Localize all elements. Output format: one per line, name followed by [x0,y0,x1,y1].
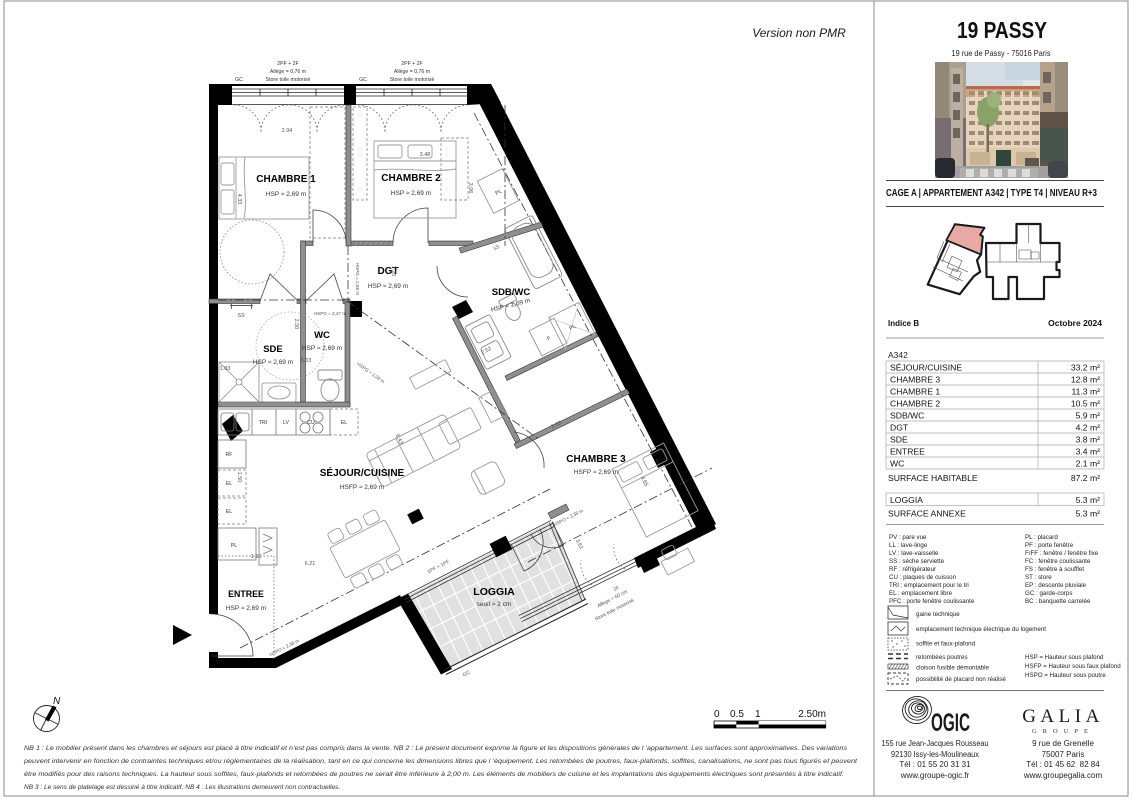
svg-text:HSFP = Hauteur sous faux plafo: HSFP = Hauteur sous faux plafond [1025,663,1121,670]
svg-text:HSPG = 1,28 m: HSPG = 1,28 m [356,361,385,384]
svg-text:2.50: 2.50 [293,319,299,330]
svg-text:Allège = 0,76 m: Allège = 0,76 m [394,69,430,75]
svg-text:NB 3 : Le sens de platelage es: NB 3 : Le sens de platelage est dessiné … [24,784,340,791]
svg-text:SS: SS [492,244,500,251]
svg-text:2.1 m²: 2.1 m² [1076,459,1100,469]
svg-text:WC: WC [314,330,330,341]
svg-text:3.4 m²: 3.4 m² [1076,447,1100,457]
svg-text:LV : lave-vaisselle: LV : lave-vaisselle [889,550,939,557]
svg-text:CHAMBRE 1: CHAMBRE 1 [256,174,316,185]
svg-text:F: F [546,335,552,342]
svg-text:LL : lave-linge: LL : lave-linge [889,542,928,549]
svg-text:SURFACE HABITABLE: SURFACE HABITABLE [888,473,978,483]
svg-text:SS : sèche serviette: SS : sèche serviette [889,558,945,565]
svg-text:2.50m: 2.50m [798,709,826,720]
svg-text:GC: GC [462,670,472,679]
svg-text:PF : porte fenêtre: PF : porte fenêtre [1025,542,1074,549]
svg-text:Allège = 0,76 m: Allège = 0,76 m [270,69,306,75]
svg-text:WC: WC [890,459,904,469]
svg-text:1.50: 1.50 [251,554,262,560]
svg-text:SDB/WC: SDB/WC [492,287,531,298]
svg-text:HSP ≈ 2,69 m: HSP ≈ 2,69 m [253,359,293,366]
svg-text:5.9 m²: 5.9 m² [1076,411,1100,421]
svg-text:Version non PMR: Version non PMR [752,26,846,40]
svg-text:FC : fenêtre coulissante: FC : fenêtre coulissante [1025,558,1091,565]
svg-text:Octobre 2024: Octobre 2024 [1048,318,1102,328]
svg-text:N: N [53,696,61,707]
svg-text:75007 Paris: 75007 Paris [1042,750,1085,759]
svg-text:5.3 m²: 5.3 m² [1076,509,1100,519]
svg-text:BC : banquette carrelée: BC : banquette carrelée [1025,598,1091,605]
svg-text:HSFP ≈ 2,69 m: HSFP ≈ 2,69 m [574,469,618,476]
svg-text:HSPG = 2,47 m: HSPG = 2,47 m [314,311,346,316]
svg-text:SÉJOUR/CUISINE: SÉJOUR/CUISINE [320,466,405,479]
svg-text:peuvent intervenir en fonction: peuvent intervenir en fonction de contra… [23,758,858,765]
svg-text:ENTREE: ENTREE [228,589,264,599]
svg-text:HSP ≈ 2,69 m: HSP ≈ 2,69 m [391,190,431,197]
svg-text:3.8 m²: 3.8 m² [1076,435,1100,445]
svg-text:www.groupegalia.com: www.groupegalia.com [1023,771,1103,780]
svg-text:4.2 m²: 4.2 m² [1076,423,1100,433]
svg-text:CAGE A | APPARTEMENT A342 | TY: CAGE A | APPARTEMENT A342 | TYPE T4 | NI… [886,188,1097,199]
svg-text:RF : réfrigérateur: RF : réfrigérateur [889,566,936,573]
svg-text:GALIA: GALIA [1022,706,1104,727]
svg-text:LOGGIA: LOGGIA [890,495,923,505]
svg-text:PL: PL [569,324,578,332]
svg-text:TRI : emplacement pour le tri: TRI : emplacement pour le tri [889,582,969,589]
svg-text:seuil ≈ 2 cm: seuil ≈ 2 cm [477,601,512,608]
svg-text:3.06: 3.06 [467,183,473,194]
svg-text:5.03: 5.03 [301,358,312,364]
svg-text:PL : placard: PL : placard [1025,534,1058,541]
svg-text:ENTREE: ENTREE [890,447,925,457]
svg-text:SS: SS [237,313,245,319]
svg-text:19 PASSY: 19 PASSY [957,17,1047,43]
svg-text:HSPO = Hauteur sous poutre: HSPO = Hauteur sous poutre [1025,672,1106,679]
svg-text:HSP ≈ 2,69 m: HSP ≈ 2,69 m [368,283,408,290]
svg-text:SDE: SDE [890,435,908,445]
svg-text:Tél : 01 55 20 31 31: Tél : 01 55 20 31 31 [899,760,971,769]
svg-text:EL: EL [226,481,232,487]
svg-text:CHAMBRE 2: CHAMBRE 2 [890,399,940,409]
svg-text:LOGGIA: LOGGIA [473,586,515,598]
svg-text:Indice B: Indice B [888,319,919,328]
svg-text:GC: GC [359,77,367,83]
svg-text:GC : garde-corps: GC : garde-corps [1025,590,1072,597]
svg-text:12.8 m²: 12.8 m² [1071,375,1100,385]
svg-text:RF: RF [226,452,233,458]
svg-text:ST : store: ST : store [1025,574,1052,581]
svg-text:CU : plaques de cuisson: CU : plaques de cuisson [889,574,957,581]
svg-text:1.50: 1.50 [236,472,242,483]
svg-text:3.61: 3.61 [574,538,584,550]
svg-text:cloison fusible démontable: cloison fusible démontable [916,665,989,672]
svg-text:1: 1 [755,709,761,720]
svg-text:FS : fenêtre à soufflet: FS : fenêtre à soufflet [1025,566,1084,573]
svg-text:1.83: 1.83 [220,366,231,372]
svg-text:SÉJOUR/CUISINE: SÉJOUR/CUISINE [890,363,962,373]
svg-text:6.21: 6.21 [305,561,316,567]
svg-text:Store toile motorisé: Store toile motorisé [266,77,311,83]
svg-text:HSP ≈ 2,69 m: HSP ≈ 2,69 m [266,191,306,198]
svg-text:DGT: DGT [890,423,909,433]
svg-text:4.33: 4.33 [236,194,242,205]
svg-text:CHAMBRE 1: CHAMBRE 1 [890,387,940,397]
svg-text:TRI: TRI [259,420,267,426]
svg-text:CHAMBRE 3: CHAMBRE 3 [890,375,940,385]
svg-text:19 rue de Passy - 75016 Paris: 19 rue de Passy - 75016 Paris [952,48,1051,58]
svg-text:LV: LV [283,420,289,426]
svg-text:EL: EL [226,509,232,515]
svg-text:4.65: 4.65 [639,475,649,487]
svg-text:HSFP ≈ 2,69 m: HSFP ≈ 2,69 m [340,484,384,491]
svg-text:A342: A342 [888,350,908,360]
svg-text:PFC : porte fenêtre coulissant: PFC : porte fenêtre coulissante [889,598,975,605]
svg-text:PL: PL [231,543,237,549]
svg-text:CHAMBRE 3: CHAMBRE 3 [566,454,626,465]
svg-text:GC: GC [235,77,243,83]
svg-text:5.3 m²: 5.3 m² [1076,495,1100,505]
svg-text:SURFACE ANNEXE: SURFACE ANNEXE [888,509,966,519]
svg-text:HSP ≈ 2,69 m: HSP ≈ 2,69 m [490,297,531,314]
svg-text:NB 1 : Le mobilier présent dan: NB 1 : Le mobilier présent dans les cham… [24,745,848,752]
svg-text:1PF + 1PF: 1PF + 1PF [426,559,450,575]
svg-text:3.48: 3.48 [420,152,431,158]
svg-text:HSPG = 2,58 m: HSPG = 2,58 m [355,263,360,295]
svg-text:9 rue de Grenelle: 9 rue de Grenelle [1032,739,1094,748]
svg-text:33.2 m²: 33.2 m² [1071,363,1100,373]
svg-text:87.2 m²: 87.2 m² [1071,473,1100,483]
svg-text:Store toile motorisé: Store toile motorisé [390,77,435,83]
svg-text:retombées poutres: retombées poutres [916,654,968,661]
svg-text:10.5 m²: 10.5 m² [1071,399,1100,409]
svg-text:1.20: 1.20 [390,266,396,277]
svg-text:11.3 m²: 11.3 m² [1072,387,1101,397]
svg-text:Tél : 01 45 62 82 84: Tél : 01 45 62 82 84 [1026,760,1100,769]
svg-text:155 rue Jean-Jacques Rousseau: 155 rue Jean-Jacques Rousseau [882,739,989,748]
svg-text:HSP ≈ 2,69 m: HSP ≈ 2,69 m [302,345,342,352]
svg-text:HSP ≈ 2,69 m: HSP ≈ 2,69 m [226,605,266,612]
svg-text:0.5: 0.5 [730,709,744,720]
svg-text:PL: PL [495,189,504,197]
svg-text:92130 Issy-les-Moulineaux: 92130 Issy-les-Moulineaux [891,750,979,759]
svg-text:possibilité de placard non réa: possibilité de placard non réalisé [916,676,1006,683]
svg-text:soffite et faux-plafond: soffite et faux-plafond [916,641,976,648]
svg-text:EL: EL [341,420,347,426]
svg-text:EL : emplacement libre: EL : emplacement libre [889,590,953,597]
svg-text:GROUPE: GROUPE [1032,728,1094,735]
svg-text:SDE: SDE [263,344,283,355]
svg-text:PV : pare vue: PV : pare vue [889,534,927,541]
svg-text:SDB/WC: SDB/WC [890,411,924,421]
svg-text:F/FF : fenêtre / fenêtre fixe: F/FF : fenêtre / fenêtre fixe [1025,550,1099,557]
svg-text:HSP = Hauteur sous plafond: HSP = Hauteur sous plafond [1025,654,1104,661]
svg-text:2.94: 2.94 [282,128,293,134]
svg-text:CU: CU [307,420,315,426]
svg-text:0: 0 [714,709,720,720]
svg-text:être modifiés pour des raisons: être modifiés pour des raisons technique… [24,771,844,778]
svg-text:EP : descente pluviale: EP : descente pluviale [1025,582,1087,589]
svg-text:2PF + 2F: 2PF + 2F [401,61,422,67]
svg-text:OGIC: OGIC [931,709,970,737]
svg-text:emplacement technique électriq: emplacement technique électrique du loge… [916,626,1046,633]
svg-text:CHAMBRE 2: CHAMBRE 2 [381,173,441,184]
svg-text:gaine technique: gaine technique [916,611,960,618]
svg-text:www.groupe-ogic.fr: www.groupe-ogic.fr [900,771,970,780]
svg-text:2PF + 2F: 2PF + 2F [277,61,298,67]
